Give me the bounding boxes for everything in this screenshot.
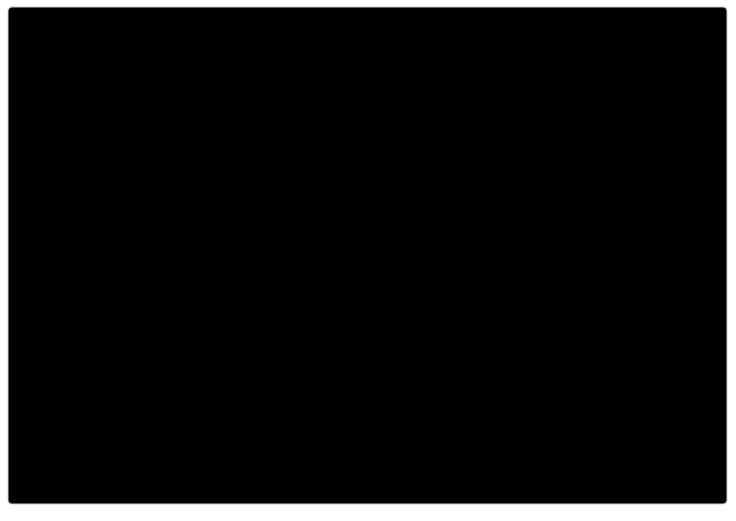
aerial-photomontage xyxy=(0,0,736,521)
photo-canvas xyxy=(0,0,736,521)
aerial-photo xyxy=(8,7,727,504)
photo-base xyxy=(8,7,727,504)
